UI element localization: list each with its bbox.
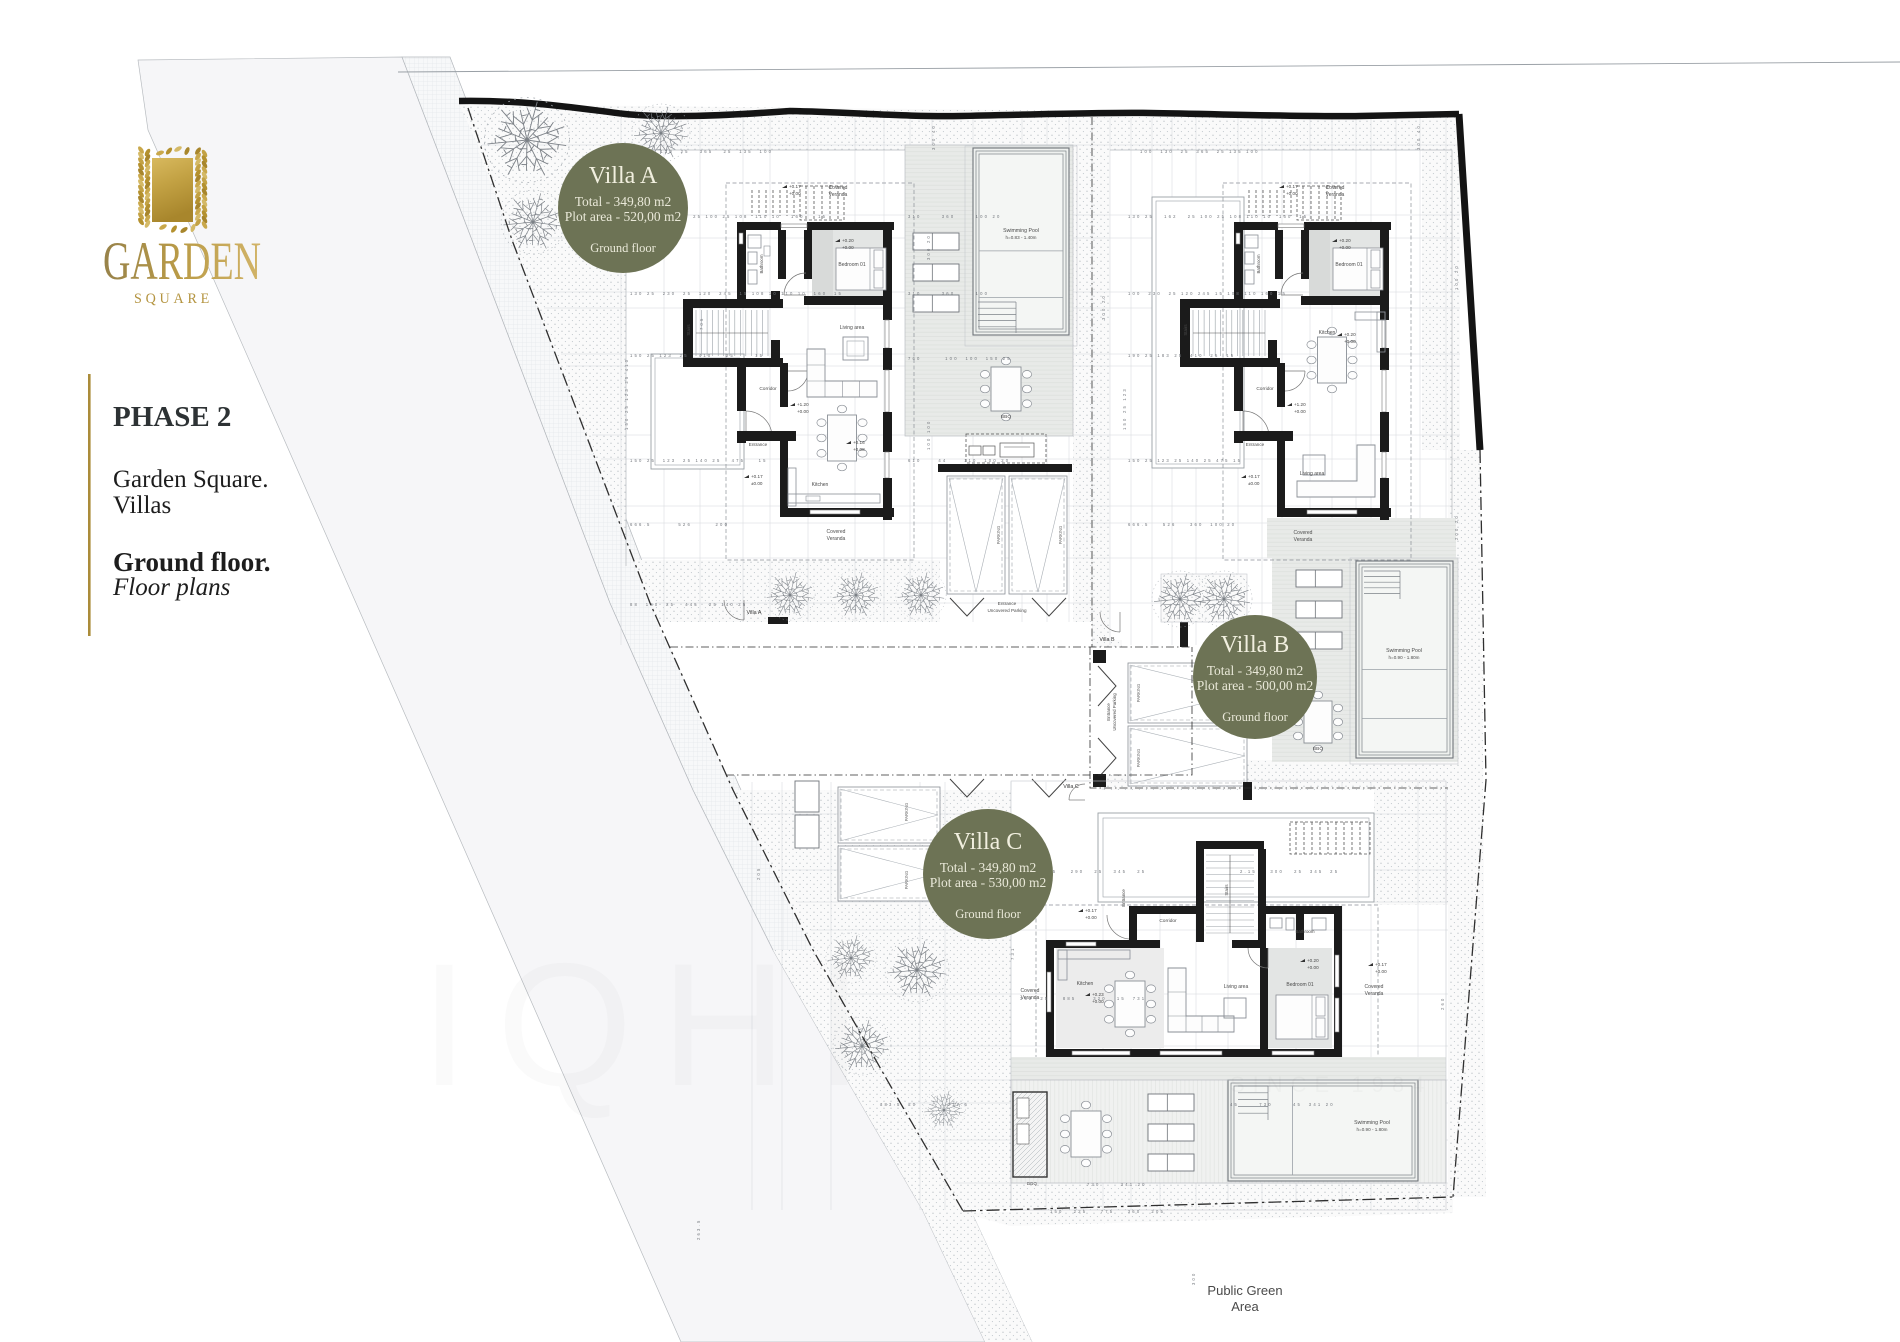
svg-text:Total - 349,80 m2: Total - 349,80 m2 [575, 194, 672, 209]
svg-text:150 25 123 25 410: 150 25 123 25 410 [624, 358, 629, 430]
svg-text:Covered: Covered [1365, 984, 1384, 990]
svg-text:PARKING: PARKING [996, 526, 1001, 545]
svg-text:760 100 100 150 25: 760 100 100 150 25 [908, 356, 1012, 361]
svg-text:+0.00: +0.00 [1307, 965, 1319, 970]
svg-text:+1.20: +1.20 [1294, 402, 1306, 407]
svg-text:Kitchen: Kitchen [812, 482, 829, 488]
svg-text:Ground floor: Ground floor [955, 907, 1021, 921]
svg-text:Area: Area [1231, 1299, 1259, 1314]
svg-text:SINCE 1984: SINCE 1984 [1230, 1072, 1432, 1097]
svg-text:2.15 300 25 345 25: 2.15 300 25 345 25 [1240, 869, 1339, 874]
svg-text:Public Green: Public Green [1207, 1283, 1282, 1298]
svg-text:+0.00: +0.00 [842, 245, 854, 250]
svg-text:+0.00: +0.00 [1344, 339, 1356, 344]
svg-text:Villa A: Villa A [589, 163, 658, 189]
svg-text:100 130 25 365 25 135: 100 130 25 365 25 135 100 [640, 149, 773, 154]
svg-text:+0.08: +0.08 [853, 447, 865, 452]
svg-text:190 25 183 25 410 25 15: 190 25 183 25 410 25 15 [1128, 353, 1235, 358]
svg-text:Swimming Pool: Swimming Pool [1354, 1120, 1390, 1126]
svg-text:Garden Square.: Garden Square. [113, 466, 269, 493]
svg-text:Ground floor.: Ground floor. [113, 547, 271, 577]
svg-text:Kitchen: Kitchen [1077, 981, 1094, 987]
svg-text:Corridor: Corridor [1256, 386, 1274, 392]
svg-text:150 225 775 360 205: 150 225 775 360 205 [1050, 1209, 1165, 1214]
svg-text:Ground floor: Ground floor [1222, 710, 1288, 724]
svg-text:Living area: Living area [1300, 471, 1325, 477]
svg-text:+0.20: +0.20 [842, 238, 854, 243]
svg-text:300 20: 300 20 [1101, 294, 1106, 320]
svg-text:+0.17: +0.17 [1375, 962, 1387, 967]
svg-text:PARKING: PARKING [904, 803, 909, 822]
svg-text:705: 705 [699, 316, 704, 330]
svg-text:300 40: 300 40 [931, 124, 936, 150]
svg-text:130 25 230 25 120 245 15: 130 25 230 25 120 245 15 108 10 110 10 1… [630, 291, 843, 296]
svg-text:Corridor: Corridor [759, 386, 777, 392]
svg-text:h=0.83 - 1.40m: h=0.83 - 1.40m [1005, 235, 1036, 240]
svg-text:+1.20: +1.20 [797, 402, 809, 407]
svg-text:+0.16: +0.16 [853, 440, 865, 445]
svg-text:300 40: 300 40 [1416, 124, 1421, 150]
svg-text:Covered: Covered [1294, 530, 1313, 536]
svg-text:150 25 123 25 410 25: 150 25 123 25 410 25 15 [630, 353, 764, 358]
svg-text:+0.00: +0.00 [1339, 245, 1351, 250]
svg-text:362 25 885 320 15 7: 362 25 885 320 15 731 [1020, 996, 1146, 1001]
svg-text:Entrance: Entrance [1106, 703, 1111, 721]
svg-text:Stairs: Stairs [686, 324, 691, 336]
svg-text:310 360 100: 310 360 100 [908, 291, 989, 296]
svg-text:Living area: Living area [1224, 984, 1249, 990]
svg-text:+0.00: +0.00 [797, 409, 809, 414]
svg-text:h=0.90 - 1.80m: h=0.90 - 1.80m [1388, 655, 1419, 660]
svg-text:150 25 123 25 140 25 475 15: 150 25 123 25 140 25 475 15 [1128, 458, 1242, 463]
svg-text:205: 205 [756, 866, 761, 880]
svg-text:130 25 162 25 100 25 108 1: 130 25 162 25 100 25 108 110 10 160 15 [1128, 214, 1308, 219]
svg-text:Veranda: Veranda [827, 536, 846, 542]
svg-text:Swimming Pool: Swimming Pool [1386, 648, 1422, 654]
svg-text:+0.20: +0.20 [1339, 238, 1351, 243]
svg-text:Entrance: Entrance [998, 601, 1017, 606]
svg-text:Plot area - 530,00 m2: Plot area - 530,00 m2 [930, 875, 1047, 890]
svg-text:Covered: Covered [827, 529, 846, 535]
svg-text:Stairs: Stairs [1224, 884, 1229, 896]
svg-text:IQHI: IQHI [420, 928, 892, 1123]
svg-text:PARKING: PARKING [1058, 526, 1063, 545]
svg-text:±0.00: ±0.00 [1248, 481, 1260, 486]
svg-text:+0.00: +0.00 [1375, 969, 1387, 974]
svg-text:150 25 123: 150 25 123 [1122, 387, 1127, 430]
svg-text:Living area: Living area [840, 325, 865, 331]
svg-text:SQUARE: SQUARE [134, 291, 213, 307]
svg-text:Ground floor: Ground floor [590, 241, 656, 255]
svg-text:Veranda: Veranda [1294, 537, 1313, 543]
svg-text:100 230 25 120 245 15 108 11: 100 230 25 120 245 15 108 110 160 15 [1128, 291, 1287, 296]
svg-text:+0.17: +0.17 [789, 184, 801, 189]
svg-text:+0.17: +0.17 [1248, 474, 1260, 479]
svg-text:Entrance: Entrance [749, 442, 768, 447]
svg-text:+0.20: +0.20 [1307, 958, 1319, 963]
svg-text:Veranda: Veranda [1365, 991, 1384, 997]
svg-text:Corridor: Corridor [1159, 918, 1177, 924]
svg-text:PHASE 2: PHASE 2 [113, 401, 231, 433]
svg-text:BBQ: BBQ [1313, 746, 1323, 752]
svg-text:666.5 526 360 100 20: 666.5 526 360 100 20 [1128, 522, 1236, 527]
svg-text:150 25 123 25 140 25 475: 150 25 123 25 140 25 475 15 [630, 458, 768, 463]
svg-text:200 20: 200 20 [1454, 514, 1459, 540]
svg-text:Total - 349,80 m2: Total - 349,80 m2 [1207, 663, 1304, 678]
svg-text:BBQ: BBQ [1001, 414, 1011, 420]
svg-text:Plot area - 520,00 m2: Plot area - 520,00 m2 [565, 209, 682, 224]
svg-text:730 341 20: 730 341 20 [1060, 1182, 1147, 1187]
svg-text:310 360 100 20: 310 360 100 20 [908, 214, 1002, 219]
svg-text:Villa C: Villa C [954, 829, 1023, 855]
svg-text:+0.00: +0.00 [1294, 409, 1306, 414]
svg-text:±0.00: ±0.00 [751, 481, 763, 486]
svg-text:Villa B: Villa B [1221, 632, 1290, 658]
svg-text:PARKING: PARKING [904, 871, 909, 890]
svg-text:Entrance: Entrance [1246, 442, 1265, 447]
svg-text:Swimming Pool: Swimming Pool [1003, 228, 1039, 234]
svg-text:300: 300 [1191, 1271, 1196, 1285]
svg-text:BBQ: BBQ [1027, 1181, 1037, 1187]
svg-text:GARDEN: GARDEN [103, 231, 261, 291]
svg-text:Kitchen: Kitchen [1319, 330, 1336, 336]
svg-text:Floor plans: Floor plans [112, 574, 230, 601]
svg-text:100 100: 100 100 [926, 419, 931, 450]
svg-text:Stairs: Stairs [1183, 324, 1188, 336]
svg-text:+0.17: +0.17 [751, 474, 763, 479]
svg-text:610 44 110 100 20: 610 44 110 100 20 [908, 458, 1010, 463]
svg-text:383.5 20 017.5: 383.5 20 017.5 [880, 1102, 969, 1107]
svg-text:45 730 45 341 20: 45 730 45 341 20 [1230, 1102, 1335, 1107]
svg-text:Bathroom: Bathroom [1295, 929, 1314, 934]
svg-text:Villa B: Villa B [1099, 637, 1115, 643]
svg-text:666.5 526 200: 666.5 526 200 [630, 522, 729, 527]
svg-text:263.5: 263.5 [696, 1219, 701, 1240]
svg-text:Villa C: Villa C [1063, 784, 1079, 790]
svg-text:+0.00: +0.00 [789, 191, 801, 196]
svg-text:88 140 25 445 25 140 25: 88 140 25 445 25 140 25 [630, 602, 747, 607]
svg-text:Entrance: Entrance [1121, 889, 1126, 907]
svg-text:+0.00: +0.00 [1286, 191, 1298, 196]
svg-text:+0.17: +0.17 [1085, 908, 1097, 913]
svg-text:Bathroom: Bathroom [759, 254, 764, 273]
svg-text:+0.20: +0.20 [1344, 332, 1356, 337]
svg-text:260: 260 [1440, 996, 1445, 1010]
svg-text:+0.17: +0.17 [1286, 184, 1298, 189]
svg-text:PARKING: PARKING [1136, 749, 1141, 768]
svg-text:Bedroom 01: Bedroom 01 [1335, 262, 1362, 268]
svg-text:PARKING: PARKING [1136, 684, 1141, 703]
svg-text:100 20: 100 20 [1454, 264, 1459, 290]
svg-text:Covered: Covered [1021, 988, 1040, 994]
svg-text:Total - 349,80 m2: Total - 349,80 m2 [940, 860, 1037, 875]
svg-text:Bathroom: Bathroom [1256, 254, 1261, 273]
svg-text:Villas: Villas [113, 492, 171, 519]
svg-text:Bedroom 01: Bedroom 01 [1286, 982, 1313, 988]
svg-text:Villa A: Villa A [747, 610, 762, 616]
svg-text:+0.00: +0.00 [1085, 915, 1097, 920]
svg-text:100 130 25 365 25 135 100: 100 130 25 365 25 135 100 [1140, 149, 1260, 154]
svg-text:Plot area - 500,00 m2: Plot area - 500,00 m2 [1197, 678, 1314, 693]
svg-text:300 20: 300 20 [926, 234, 931, 260]
svg-text:731: 731 [1010, 946, 1015, 960]
svg-text:h=0.90 - 1.80m: h=0.90 - 1.80m [1356, 1127, 1387, 1132]
svg-text:Uncovered Parking: Uncovered Parking [987, 608, 1027, 613]
svg-text:Bedroom 01: Bedroom 01 [838, 262, 865, 268]
svg-text:Uncovered Parking: Uncovered Parking [1112, 693, 1117, 731]
